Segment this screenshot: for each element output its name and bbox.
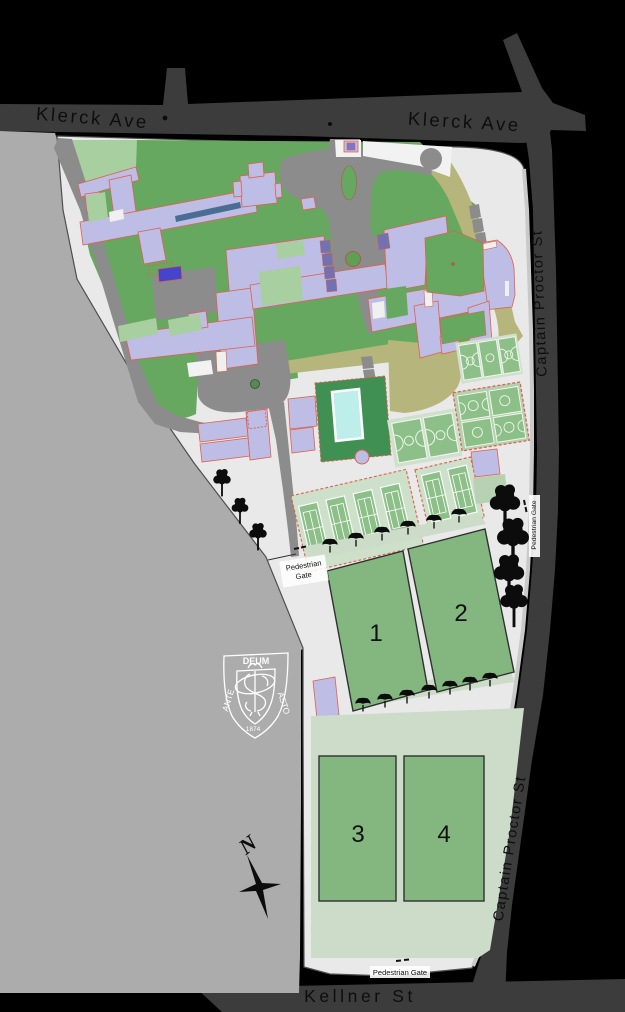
svg-text:4: 4 — [437, 821, 450, 848]
svg-text:DEUM: DEUM — [243, 656, 270, 666]
svg-text:Kellner St: Kellner St — [304, 986, 416, 1006]
svg-text:3: 3 — [351, 821, 364, 848]
svg-text:1: 1 — [369, 620, 382, 647]
svg-text:Pedestrian Gate: Pedestrian Gate — [373, 968, 427, 977]
svg-text:2: 2 — [454, 600, 467, 627]
svg-text:1874: 1874 — [246, 726, 261, 733]
svg-text:Pedestrian Gate: Pedestrian Gate — [531, 500, 538, 549]
